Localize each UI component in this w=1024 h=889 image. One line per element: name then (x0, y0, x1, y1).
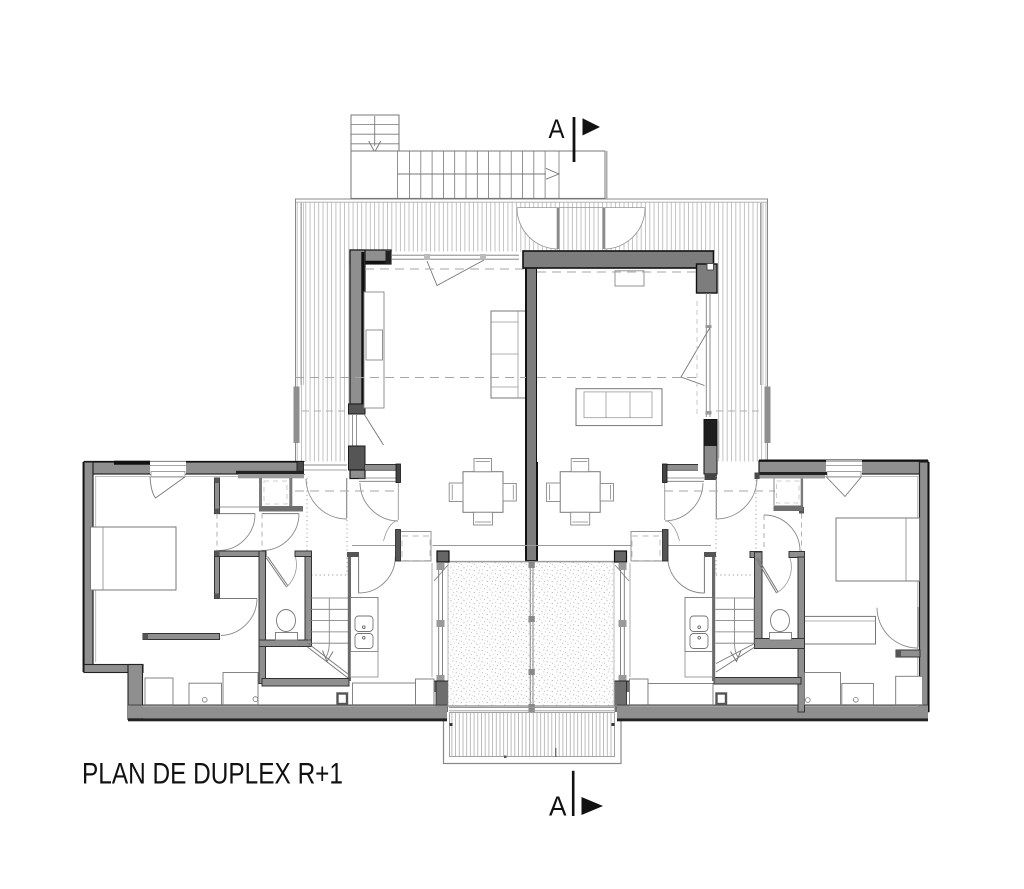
svg-text:PLAN DE DUPLEX R+1: PLAN DE DUPLEX R+1 (82, 758, 343, 791)
svg-text:A: A (549, 791, 567, 822)
svg-text:A: A (549, 114, 565, 144)
